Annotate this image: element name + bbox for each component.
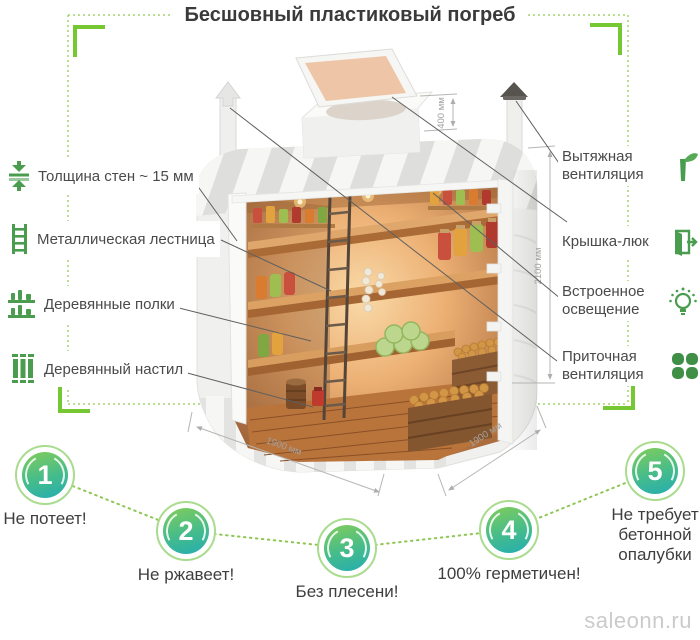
corner-bracket-top-right-icon: [590, 25, 620, 55]
page-title: Бесшовный пластиковый погреб: [173, 4, 528, 27]
label-text: Деревянные полки: [44, 296, 175, 313]
decking-icon: [11, 354, 35, 384]
cellar-illustration: 400 мм 2100 мм 1900 мм 1900 мм: [150, 40, 570, 510]
dim-depth: 1900 мм: [467, 420, 504, 449]
roof-corrugation: [176, 130, 552, 224]
wall-cut-edges: [228, 179, 513, 444]
wooden-floor: [246, 378, 505, 462]
label-text: Толщина стен ~ 15 мм: [38, 168, 194, 185]
benefit-1: 1 Не потеет!: [15, 445, 75, 505]
benefit-caption: 100% герметичен!: [437, 564, 580, 584]
benefit-5: 5 Не требует бетонной опалубки: [625, 441, 685, 501]
benefit-3: 3 Без плесени!: [317, 518, 377, 578]
bottom-corrugation: [196, 396, 446, 483]
label-supply-vent: Приточная вентиляция: [558, 346, 700, 386]
metal-ladder: [324, 194, 350, 420]
benefit-number: 5: [647, 458, 662, 485]
benefit-caption: Не потеет!: [3, 509, 86, 529]
dim-hatch-neck: 400 мм: [436, 97, 447, 129]
label-shelves: Деревянные полки: [3, 286, 180, 322]
wall-thickness-icon: [9, 161, 29, 191]
red-jar: [312, 387, 324, 406]
label-text: Встроенное освещение: [562, 283, 659, 319]
exhaust-vent-pipe: [500, 82, 528, 164]
built-in-lights: [294, 184, 442, 208]
benefit-number: 1: [37, 462, 52, 489]
callout-ladder: [221, 240, 331, 291]
label-hatch: Крышка-люк: [558, 226, 700, 258]
exhaust-vent-icon: [668, 150, 698, 182]
hatch-collar: [302, 92, 432, 158]
label-wall-thickness: Толщина стен ~ 15 мм: [4, 158, 199, 194]
ladder-icon: [11, 224, 28, 254]
benefit-number: 2: [178, 518, 193, 545]
hatch-lid-open: [296, 49, 417, 107]
callout-shelves: [175, 307, 311, 341]
potato-crates: [408, 338, 505, 452]
tank-body: [197, 142, 537, 472]
benefit-caption: Не ржавеет!: [138, 565, 234, 585]
watermark: saleonn.ru: [584, 608, 692, 634]
cabbages: [376, 322, 429, 356]
callout-hatch: [392, 97, 567, 222]
benefit-circle: 1: [22, 452, 68, 498]
wooden-shelves: [248, 208, 500, 376]
supply-vent-pipe: [216, 82, 240, 160]
shelves-icon: [8, 289, 35, 319]
hatch-icon: [670, 228, 698, 256]
label-exhaust-vent: Вытяжная вентиляция: [558, 146, 700, 186]
label-ladder: Металлическая лестница: [6, 221, 220, 257]
corner-bracket-top-left-icon: [75, 27, 105, 57]
label-text: Приточная вентиляция: [562, 348, 659, 384]
preserve-jars: [256, 218, 498, 357]
label-text: Деревянный настил: [44, 361, 183, 378]
benefit-2: 2 Не ржавеет!: [156, 501, 216, 561]
label-text: Крышка-люк: [562, 233, 649, 251]
label-text: Вытяжная вентиляция: [562, 148, 659, 184]
callout-exhaust-vent: [516, 101, 563, 169]
infographic: 400 мм 2100 мм 1900 мм 1900 мм Бесшовный…: [0, 0, 700, 640]
dim-width: 1900 мм: [265, 435, 303, 458]
benefit-4: 4 100% герметичен!: [479, 500, 539, 560]
right-shade: [508, 170, 537, 450]
benefit-caption: Без плесени!: [296, 582, 399, 602]
barrel: [286, 379, 306, 410]
callout-decking: [180, 371, 313, 407]
lighting-icon: [668, 285, 698, 317]
interior: [232, 180, 505, 462]
garlic-strings: [362, 268, 386, 312]
label-decking: Деревянный настил: [6, 351, 188, 387]
benefit-number: 4: [501, 517, 516, 544]
right-wall-ribs: [514, 235, 536, 383]
benefit-ring: 1: [15, 445, 75, 505]
benefit-caption: Не требует бетонной опалубки: [607, 505, 700, 565]
back-shelf-jars: [251, 188, 498, 228]
label-text: Металлическая лестница: [37, 231, 215, 248]
dimension-lines: [188, 94, 555, 496]
callout-lighting: [433, 193, 561, 299]
dim-total-height: 2100 мм: [533, 248, 544, 285]
benefit-number: 3: [339, 535, 354, 562]
label-lighting: Встроенное освещение: [558, 281, 700, 321]
supply-vent-icon: [672, 353, 698, 379]
dotted-frame: [68, 15, 628, 404]
callout-supply-vent: [230, 108, 557, 361]
